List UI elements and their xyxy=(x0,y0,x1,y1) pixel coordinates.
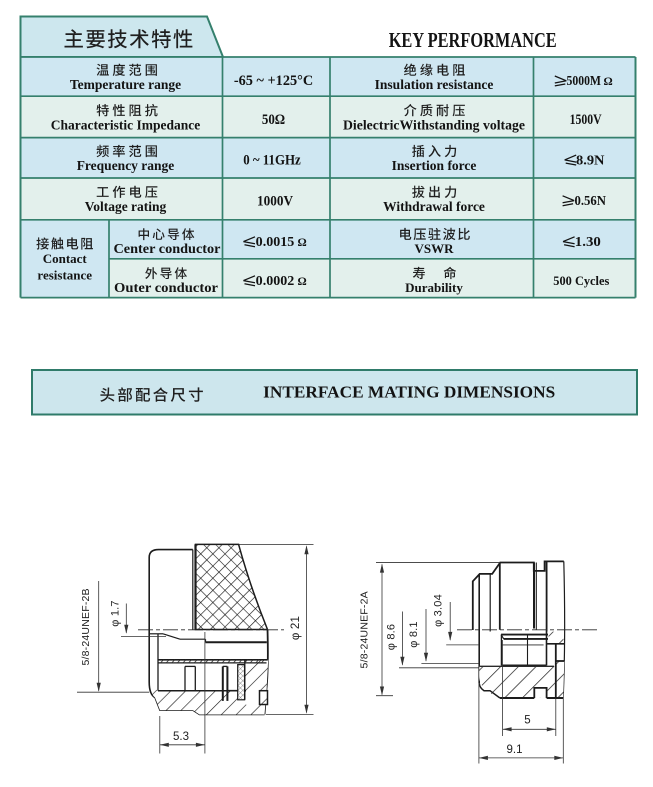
svg-text:5/8-24UNEF-2B: 5/8-24UNEF-2B xyxy=(80,588,92,665)
svg-text:Ω: Ω xyxy=(298,237,307,249)
svg-text:9.1: 9.1 xyxy=(507,744,523,756)
svg-text:Ω: Ω xyxy=(604,76,613,88)
svg-text:0.0002: 0.0002 xyxy=(256,274,295,289)
svg-text:Frequency range: Frequency range xyxy=(77,158,175,173)
svg-text:5000M: 5000M xyxy=(567,74,602,89)
svg-text:-65 ~ +125°C: -65 ~ +125°C xyxy=(234,73,313,89)
svg-text:1500V: 1500V xyxy=(570,112,602,128)
svg-text:1.30: 1.30 xyxy=(575,235,601,250)
svg-text:φ 1.7: φ 1.7 xyxy=(110,600,122,626)
svg-text:Durability: Durability xyxy=(405,280,463,295)
svg-text:Withdrawal force: Withdrawal force xyxy=(383,199,485,214)
svg-text:0.0015: 0.0015 xyxy=(256,235,295,250)
svg-text:Insertion force: Insertion force xyxy=(392,158,477,173)
svg-text:Voltage rating: Voltage rating xyxy=(85,199,167,214)
svg-text:KEY PERFORMANCE: KEY PERFORMANCE xyxy=(389,28,557,52)
svg-text:Outer conductor: Outer conductor xyxy=(114,281,218,296)
svg-text:VSWR: VSWR xyxy=(414,241,454,256)
svg-text:5.3: 5.3 xyxy=(173,731,189,743)
svg-text:φ 8.1: φ 8.1 xyxy=(408,621,420,647)
svg-text:Ω: Ω xyxy=(298,276,307,288)
svg-text:Temperature range: Temperature range xyxy=(70,77,181,92)
svg-text:Characteristic Impedance: Characteristic Impedance xyxy=(51,117,201,132)
svg-text:Contact: Contact xyxy=(43,251,88,266)
svg-text:φ 21: φ 21 xyxy=(290,616,302,640)
svg-text:Insulation resistance: Insulation resistance xyxy=(375,77,494,92)
svg-text:φ 8.6: φ 8.6 xyxy=(385,624,397,650)
svg-text:0.56N: 0.56N xyxy=(575,194,607,209)
svg-text:resistance: resistance xyxy=(37,268,92,283)
svg-text:50Ω: 50Ω xyxy=(262,112,285,128)
svg-text:1000V: 1000V xyxy=(257,194,293,210)
svg-text:Center conductor: Center conductor xyxy=(114,242,221,257)
svg-text:5: 5 xyxy=(524,715,530,727)
svg-text:INTERFACE MATING DIMENSIONS: INTERFACE MATING DIMENSIONS xyxy=(263,383,555,402)
svg-text:φ 3.04: φ 3.04 xyxy=(433,594,445,627)
svg-text:500 Cycles: 500 Cycles xyxy=(553,273,609,288)
svg-text:8.9N: 8.9N xyxy=(576,153,605,168)
svg-text:0 ~ 11GHz: 0 ~ 11GHz xyxy=(243,152,301,168)
svg-text:DielectricWithstanding voltage: DielectricWithstanding voltage xyxy=(343,117,525,132)
svg-text:5/8-24UNEF-2A: 5/8-24UNEF-2A xyxy=(358,591,370,668)
